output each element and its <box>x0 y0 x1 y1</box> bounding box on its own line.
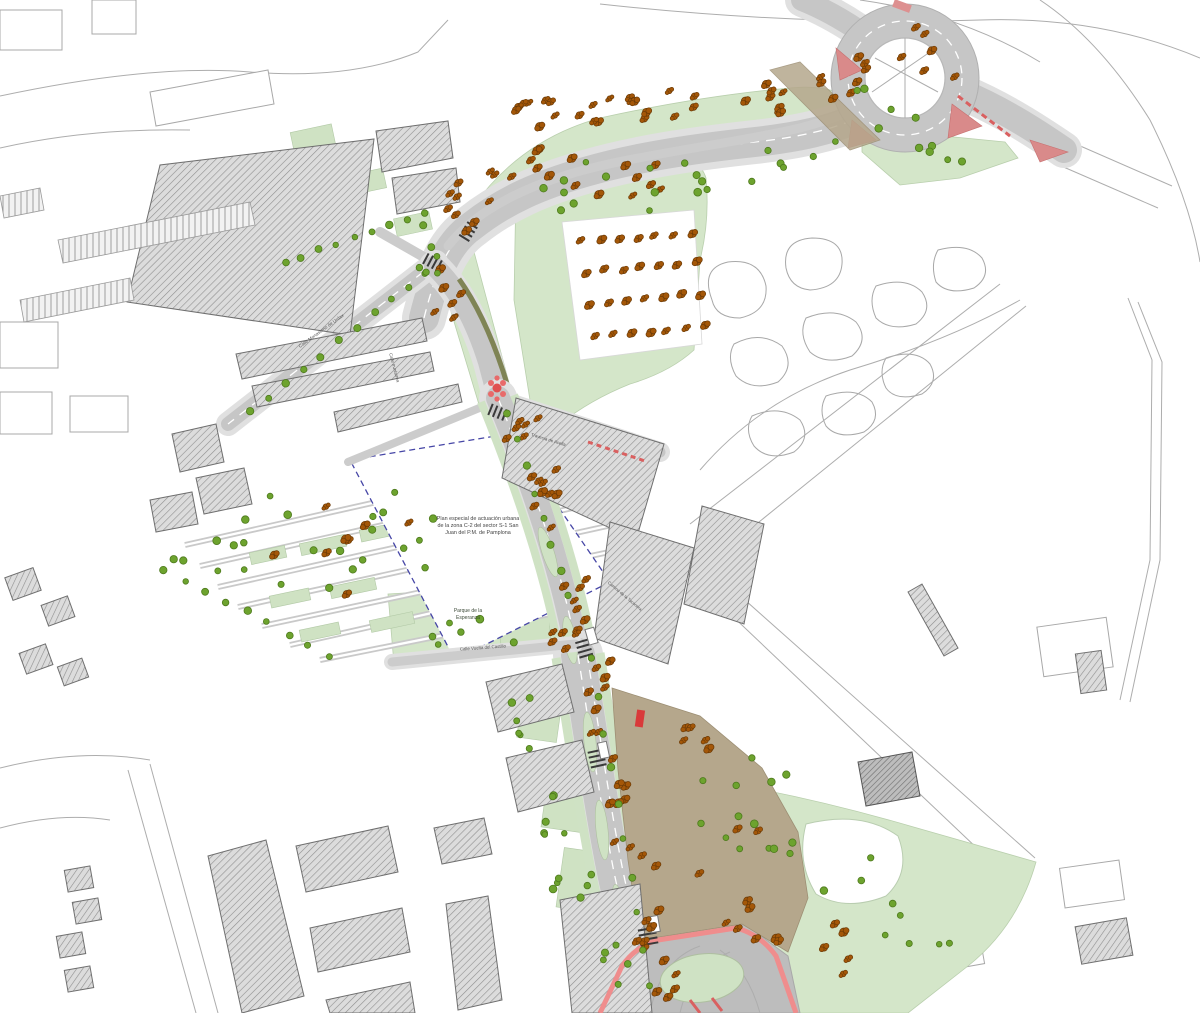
tree-green-icon <box>629 874 636 881</box>
tree-green-icon <box>434 253 440 259</box>
tree-green-icon <box>889 900 896 907</box>
tree-green-icon <box>523 462 530 469</box>
tree-green-icon <box>737 846 743 852</box>
tree-green-icon <box>244 607 252 615</box>
tree-green-icon <box>241 539 248 546</box>
tree-green-icon <box>297 255 304 262</box>
tree-green-icon <box>435 642 441 648</box>
tree-green-icon <box>213 537 221 545</box>
tree-green-icon <box>583 159 589 165</box>
tree-green-icon <box>421 210 428 217</box>
tree-green-icon <box>698 820 705 827</box>
tree-green-icon <box>615 801 622 808</box>
tree-green-icon <box>601 949 608 956</box>
tree-green-icon <box>369 229 375 235</box>
tree-green-icon <box>833 139 839 145</box>
tree-green-icon <box>783 771 790 778</box>
tree-green-icon <box>326 584 333 591</box>
tree-green-icon <box>733 782 740 789</box>
tree-green-icon <box>607 763 615 771</box>
tree-green-icon <box>310 547 317 554</box>
tree-green-icon <box>651 189 659 197</box>
tree-green-icon <box>504 410 511 417</box>
tree-green-icon <box>602 173 609 180</box>
tree-deciduous-icon <box>665 87 674 94</box>
tree-deciduous-icon <box>511 106 521 114</box>
label-park-name-1: Parque de la <box>454 608 483 614</box>
tree-green-icon <box>317 354 324 361</box>
tree-green-icon <box>620 836 626 842</box>
tree-green-icon <box>600 731 607 738</box>
tree-green-icon <box>180 557 187 564</box>
tree-green-icon <box>570 200 577 207</box>
urban-plan-map: { "document": { "type": "urban-plan-draw… <box>0 0 1200 1013</box>
tree-green-icon <box>447 620 453 626</box>
label-parcel-note-1: Plan especial de actuación urbana <box>437 516 519 522</box>
tree-green-icon <box>278 581 284 587</box>
tree-green-icon <box>549 793 556 800</box>
tree-green-icon <box>423 269 429 275</box>
tree-green-icon <box>640 947 646 953</box>
tree-green-icon <box>283 259 290 266</box>
tree-green-icon <box>560 177 568 185</box>
tree-green-icon <box>370 513 376 519</box>
tree-green-icon <box>558 567 566 575</box>
tree-green-icon <box>735 813 742 820</box>
tree-green-icon <box>912 114 919 121</box>
tree-green-icon <box>429 515 437 523</box>
tree-green-icon <box>183 579 189 585</box>
tree-green-icon <box>369 526 376 533</box>
tree-green-icon <box>588 655 594 661</box>
tree-green-icon <box>765 147 771 153</box>
tree-green-icon <box>386 221 394 229</box>
tree-green-icon <box>613 942 619 948</box>
tree-green-icon <box>555 875 562 882</box>
tree-green-icon <box>749 178 755 184</box>
tree-green-icon <box>510 639 517 646</box>
tree-green-icon <box>242 516 250 524</box>
tree-green-icon <box>304 642 310 648</box>
tree-deciduous-icon <box>322 503 330 510</box>
tree-deciduous-icon <box>605 657 615 666</box>
tree-green-icon <box>380 509 387 516</box>
tree-green-icon <box>541 515 547 521</box>
tree-green-icon <box>810 153 816 159</box>
label-parcel-note-2: de la zona C-2 del sector S-1 San <box>438 523 519 529</box>
tree-green-icon <box>882 932 888 938</box>
tree-green-icon <box>875 125 883 133</box>
tree-green-icon <box>542 818 549 825</box>
tree-green-icon <box>624 961 631 968</box>
tree-green-icon <box>420 222 427 229</box>
tree-green-icon <box>945 157 951 163</box>
tree-green-icon <box>352 234 358 240</box>
tree-green-icon <box>897 912 903 918</box>
tree-green-icon <box>514 436 520 442</box>
tree-deciduous-icon <box>761 80 771 89</box>
tree-green-icon <box>282 380 290 388</box>
tree-green-icon <box>694 188 702 196</box>
tree-green-icon <box>286 632 293 639</box>
tree-green-icon <box>749 755 755 761</box>
tree-green-icon <box>526 745 532 751</box>
tree-green-icon <box>561 189 568 196</box>
tree-green-icon <box>333 242 339 248</box>
tree-green-icon <box>647 165 653 171</box>
tree-green-icon <box>266 395 272 401</box>
tree-green-icon <box>406 284 412 290</box>
tree-green-icon <box>858 877 865 884</box>
tree-green-icon <box>600 957 606 963</box>
tree-green-icon <box>647 208 653 214</box>
tree-green-icon <box>562 831 568 837</box>
tree-deciduous-icon <box>444 205 453 213</box>
tree-green-icon <box>915 144 923 152</box>
tree-green-icon <box>526 695 533 702</box>
tree-deciduous-icon <box>690 92 699 100</box>
tree-green-icon <box>936 941 942 947</box>
tree-green-icon <box>681 160 688 167</box>
tree-green-icon <box>215 568 221 574</box>
tree-green-icon <box>888 106 894 112</box>
tree-green-icon <box>428 244 435 251</box>
tree-green-icon <box>222 599 229 606</box>
tree-green-icon <box>820 887 828 895</box>
tree-green-icon <box>263 619 269 625</box>
tree-green-icon <box>241 567 247 573</box>
tree-green-icon <box>301 366 307 372</box>
tree-green-icon <box>267 493 273 499</box>
tree-deciduous-icon <box>606 95 614 102</box>
tree-green-icon <box>532 491 538 497</box>
tree-green-icon <box>557 207 564 214</box>
tree-green-icon <box>958 158 965 165</box>
tree-deciduous-icon <box>575 111 584 119</box>
tree-green-icon <box>392 489 398 495</box>
tree-green-icon <box>336 547 344 555</box>
tree-green-icon <box>435 270 441 276</box>
tree-green-icon <box>780 164 786 170</box>
tree-green-icon <box>698 178 705 185</box>
tree-green-icon <box>789 839 796 846</box>
tree-green-icon <box>160 566 167 573</box>
plan-canvas: Plan especial de actuación urbanade la z… <box>0 0 1200 1013</box>
tree-green-icon <box>770 845 778 853</box>
tree-green-icon <box>704 186 710 192</box>
tree-green-icon <box>349 566 356 573</box>
tree-green-icon <box>584 882 591 889</box>
tree-green-icon <box>787 850 793 856</box>
tree-green-icon <box>768 778 776 786</box>
tree-green-icon <box>926 148 934 156</box>
tree-green-icon <box>700 778 706 784</box>
tree-green-icon <box>326 654 332 660</box>
tree-green-icon <box>540 184 548 192</box>
tree-green-icon <box>429 633 436 640</box>
tree-green-icon <box>647 983 653 989</box>
tree-deciduous-icon <box>700 321 710 330</box>
tree-green-icon <box>422 564 429 571</box>
tree-green-icon <box>284 511 292 519</box>
tree-green-icon <box>946 940 952 946</box>
tree-green-icon <box>693 172 700 179</box>
tree-green-icon <box>170 556 177 563</box>
tree-green-icon <box>906 940 912 946</box>
tree-green-icon <box>723 835 729 841</box>
tree-green-icon <box>595 693 602 700</box>
tree-green-icon <box>577 894 584 901</box>
tree-green-icon <box>615 981 621 987</box>
tree-green-icon <box>547 541 554 548</box>
tree-green-icon <box>514 718 520 724</box>
tree-green-icon <box>868 855 874 861</box>
label-parcel-note-3: Juan del P.M. de Pamplona <box>445 530 511 536</box>
tree-green-icon <box>634 909 640 915</box>
tree-green-icon <box>230 542 237 549</box>
tree-green-icon <box>388 296 394 302</box>
label-park-name-2: Esperanza <box>456 615 480 621</box>
tree-deciduous-icon <box>535 122 545 131</box>
tree-green-icon <box>588 871 595 878</box>
tree-green-icon <box>315 246 322 253</box>
tree-green-icon <box>335 336 342 343</box>
tree-green-icon <box>400 545 407 552</box>
tree-green-icon <box>549 885 557 893</box>
tree-green-icon <box>416 537 422 543</box>
tree-green-icon <box>508 699 516 707</box>
tree-green-icon <box>202 588 209 595</box>
tree-green-icon <box>458 629 465 636</box>
tree-green-icon <box>416 264 423 271</box>
tree-green-icon <box>861 85 869 93</box>
tree-deciduous-icon <box>589 101 597 108</box>
tree-green-icon <box>354 325 361 332</box>
tree-green-icon <box>854 87 860 93</box>
tree-green-icon <box>565 592 571 598</box>
tree-green-icon <box>750 820 758 828</box>
tree-green-icon <box>542 832 548 838</box>
tree-deciduous-icon <box>551 112 559 119</box>
tree-green-icon <box>359 557 366 564</box>
tree-green-icon <box>516 730 522 736</box>
tree-green-icon <box>372 309 379 316</box>
tree-green-icon <box>246 408 253 415</box>
tree-green-icon <box>404 217 410 223</box>
